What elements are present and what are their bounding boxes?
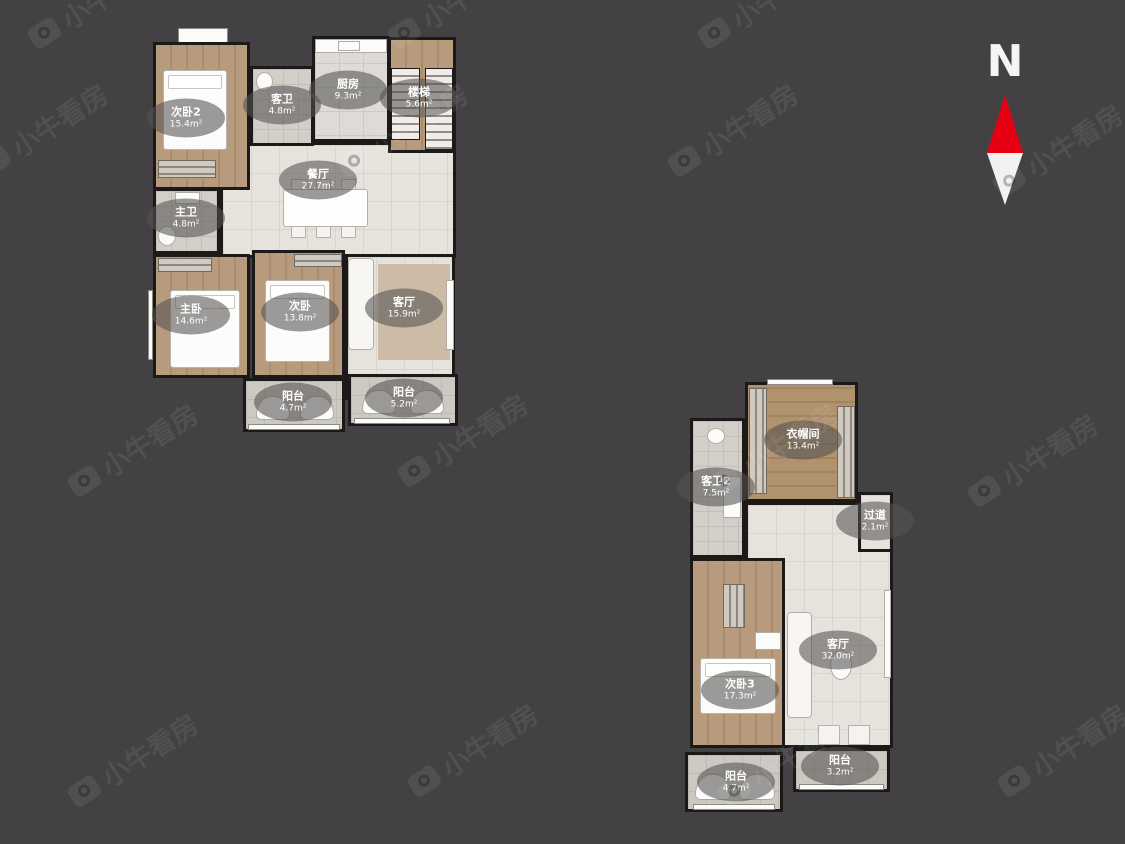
room-label: 阳台3.2m² [801, 747, 879, 786]
room-label: 餐厅27.7m² [279, 161, 357, 200]
camera-icon [0, 143, 13, 179]
compass-needle-north-icon [987, 95, 1023, 153]
room-label: 阳台4.7m² [254, 383, 332, 422]
watermark: 小牛看房 [691, 0, 835, 58]
room-label: 阳台5.2m² [365, 379, 443, 418]
chair [818, 725, 840, 745]
kitchen-sink [338, 41, 360, 51]
wardrobe [723, 584, 745, 628]
wardrobe [158, 258, 212, 272]
balcony-window [354, 418, 450, 424]
chair [848, 725, 870, 745]
watermark: 小牛看房 [661, 73, 805, 185]
balcony-window [248, 424, 340, 430]
window [767, 379, 833, 385]
room-label: 主卫4.8m² [147, 199, 225, 238]
room-label: 客卫27.5m² [677, 468, 755, 507]
compass: N [960, 40, 1050, 220]
room-label: 客厅32.0m² [799, 631, 877, 670]
toilet [707, 428, 725, 444]
camera-icon [396, 453, 434, 489]
room-label: 阳台4.7m² [697, 763, 775, 802]
bay-window [178, 28, 228, 43]
compass-north-label: N [987, 40, 1024, 84]
watermark: 小牛看房 [961, 403, 1105, 515]
watermark: 小牛看房 [991, 693, 1125, 805]
camera-icon [696, 15, 734, 51]
room-label: 过道2.1m² [836, 502, 914, 541]
rug [158, 160, 216, 178]
wardrobe [294, 254, 342, 267]
watermark: 小牛看房 [21, 0, 165, 58]
tv-cabinet [446, 280, 454, 350]
watermark: 小牛看房 [61, 703, 205, 815]
camera-icon [666, 143, 704, 179]
compass-needle-south-icon [987, 153, 1023, 205]
room-label: 厨房9.3m² [309, 71, 387, 110]
sofa [787, 612, 812, 718]
chair [341, 226, 356, 238]
window [148, 290, 153, 360]
floor-plan-2: 衣帽间13.4m² 客卫27.5m² 过道2.1m² 客厅32.0m² 次卧31… [685, 378, 897, 814]
desk [755, 632, 781, 650]
tv-cabinet [884, 590, 891, 678]
wardrobe [837, 406, 855, 498]
camera-icon [406, 763, 444, 799]
camera-icon [66, 773, 104, 809]
camera-icon [66, 463, 104, 499]
chair [291, 226, 306, 238]
chair [316, 226, 331, 238]
camera-icon [26, 15, 64, 51]
watermark: 小牛看房 [401, 693, 545, 805]
camera-icon [966, 473, 1004, 509]
floorplan-page: { "compass": { "label": "N" }, "watermar… [0, 0, 1125, 844]
room-label: 楼梯5.6m² [380, 79, 458, 118]
room-label: 次卧13.8m² [261, 293, 339, 332]
floor-plan-1: 次卧215.4m² 客卫4.8m² 厨房9.3m² 楼梯5.6m² 餐厅27.7… [148, 28, 460, 434]
room-label: 衣帽间13.4m² [764, 421, 842, 460]
camera-icon [996, 763, 1034, 799]
room-label: 次卧215.4m² [147, 99, 225, 138]
room-label: 客厅15.9m² [365, 289, 443, 328]
balcony-window [693, 804, 775, 810]
room-label: 次卧317.3m² [701, 671, 779, 710]
room-label: 主卧14.6m² [152, 296, 230, 335]
watermark: 小牛看房 [0, 73, 115, 185]
